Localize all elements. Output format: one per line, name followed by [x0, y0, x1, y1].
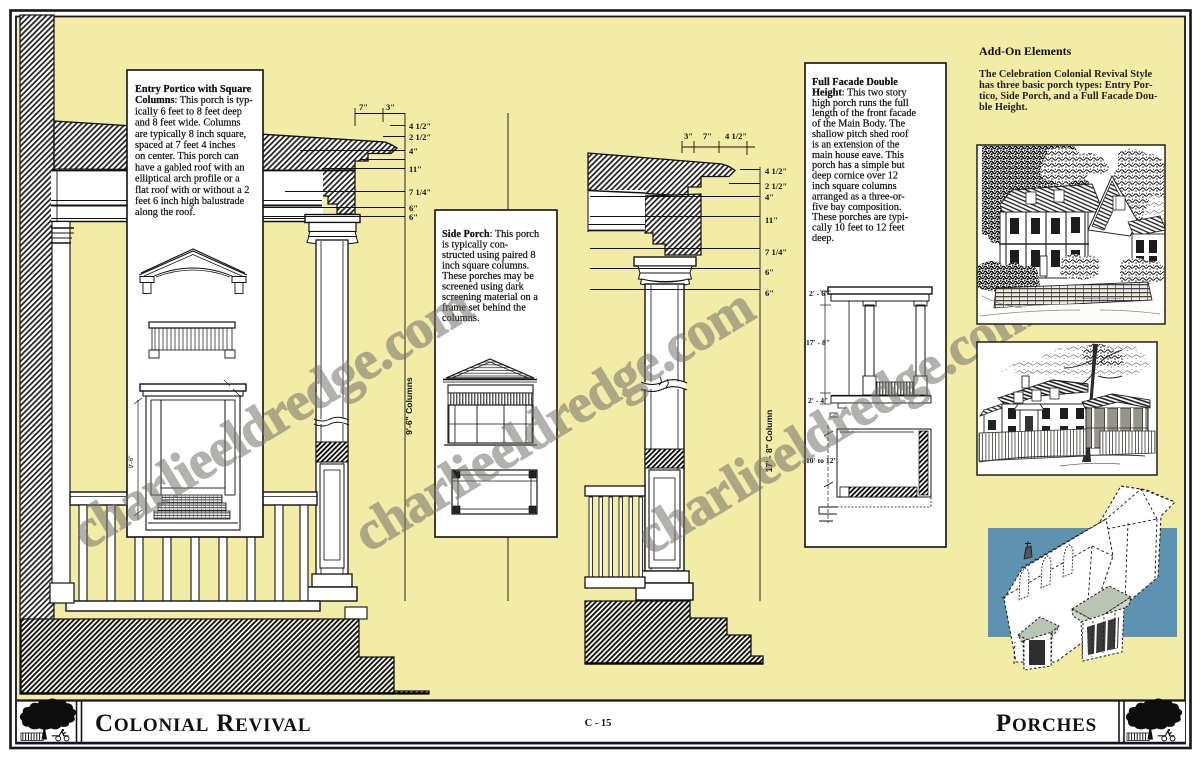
- svg-text:Entry Portico with Square: Entry Portico with Square: [135, 84, 252, 95]
- svg-text:4 1/2": 4 1/2": [725, 131, 747, 141]
- svg-text:are typically 8 inch square,: are typically 8 inch square,: [135, 129, 246, 140]
- svg-text:elliptical arch profile or a: elliptical arch profile or a: [135, 174, 240, 185]
- svg-text:inch square columns: inch square columns: [812, 181, 897, 192]
- svg-text:4": 4": [765, 192, 774, 202]
- svg-text:arranged as a three-or-: arranged as a three-or-: [812, 191, 905, 202]
- svg-text:2 1/2": 2 1/2": [409, 132, 431, 142]
- svg-text:9'-6" Columns: 9'-6" Columns: [404, 377, 414, 435]
- svg-text:4 1/2": 4 1/2": [765, 166, 787, 176]
- svg-text:ble Height.: ble Height.: [979, 102, 1028, 113]
- svg-text:porch has a simple but: porch has a simple but: [812, 160, 905, 171]
- svg-text:6": 6": [765, 267, 774, 277]
- svg-text:7": 7": [359, 102, 368, 112]
- svg-text:flat roof with or without a 2: flat roof with or without a 2: [135, 185, 249, 196]
- svg-text:has three basic porch types: E: has three basic porch types: Entry Por-: [979, 80, 1153, 91]
- svg-text:high porch runs the full: high porch runs the full: [812, 98, 909, 109]
- svg-text:Add-On Elements: Add-On Elements: [979, 44, 1072, 58]
- svg-text:deep cornice over 12: deep cornice over 12: [812, 171, 898, 182]
- svg-text:3": 3": [684, 131, 693, 141]
- svg-text:11": 11": [765, 215, 778, 225]
- svg-text:11": 11": [409, 164, 422, 174]
- svg-text:length of the front facade: length of the front facade: [812, 108, 916, 119]
- svg-text:tico, Side Porch, and a Full F: tico, Side Porch, and a Full Facade Dou-: [979, 91, 1158, 102]
- svg-text:PORCHES: PORCHES: [996, 710, 1097, 737]
- svg-text:main house eave. This: main house eave. This: [812, 150, 904, 161]
- svg-text:Columns: This porch is typ-: Columns: This porch is typ-: [135, 95, 253, 106]
- svg-text:is typically con-: is typically con-: [442, 240, 509, 251]
- svg-text:Height: This two story: Height: This two story: [812, 87, 907, 98]
- svg-text:along the roof.: along the roof.: [135, 207, 195, 218]
- svg-text:is an extension of the: is an extension of the: [812, 139, 900, 150]
- svg-text:Full Facade Double: Full Facade Double: [812, 77, 898, 88]
- svg-text:2' - 6": 2' - 6": [809, 289, 829, 298]
- svg-text:6": 6": [409, 212, 418, 222]
- svg-text:deep.: deep.: [812, 233, 834, 244]
- svg-text:shallow pitch shed roof: shallow pitch shed roof: [812, 129, 909, 140]
- svg-text:3": 3": [386, 102, 395, 112]
- svg-text:spaced at 7 feet 4 inches: spaced at 7 feet 4 inches: [135, 140, 235, 151]
- svg-text:4": 4": [409, 146, 418, 156]
- svg-text:have a gabled roof with an: have a gabled roof with an: [135, 162, 245, 173]
- svg-text:five bay composition.: five bay composition.: [812, 202, 902, 213]
- svg-text:inch square columns.: inch square columns.: [442, 261, 529, 272]
- svg-text:COLONIAL REVIVAL: COLONIAL REVIVAL: [95, 710, 311, 737]
- svg-text:Side Porch: This porch: Side Porch: This porch: [442, 229, 540, 240]
- svg-text:7 1/4": 7 1/4": [409, 187, 431, 197]
- svg-text:C - 15: C - 15: [585, 718, 612, 729]
- svg-text:of the Main Body. The: of the Main Body. The: [812, 119, 906, 130]
- svg-text:2 1/2": 2 1/2": [765, 181, 787, 191]
- svg-text:7": 7": [703, 131, 712, 141]
- svg-text:cally 10 feet to 12 feet: cally 10 feet to 12 feet: [812, 223, 904, 234]
- svg-text:4 1/2": 4 1/2": [409, 121, 431, 131]
- svg-text:structed using paired 8: structed using paired 8: [442, 250, 536, 261]
- svg-text:The Celebration Colonial Reviv: The Celebration Colonial Revival Style: [979, 69, 1153, 80]
- svg-text:17' - 8": 17' - 8": [806, 338, 830, 347]
- svg-text:ically 6 feet to 8 feet deep: ically 6 feet to 8 feet deep: [135, 106, 242, 117]
- svg-text:feet 6 inch high balustrade: feet 6 inch high balustrade: [135, 196, 245, 207]
- svg-text:6": 6": [765, 288, 774, 298]
- svg-text:on center. This porch can: on center. This porch can: [135, 151, 239, 162]
- svg-text:These porches may be: These porches may be: [442, 271, 534, 282]
- svg-text:These porches are typi-: These porches are typi-: [812, 212, 909, 223]
- svg-text:7 1/4": 7 1/4": [765, 247, 787, 257]
- svg-text:and 8 feet wide. Columns: and 8 feet wide. Columns: [135, 118, 241, 129]
